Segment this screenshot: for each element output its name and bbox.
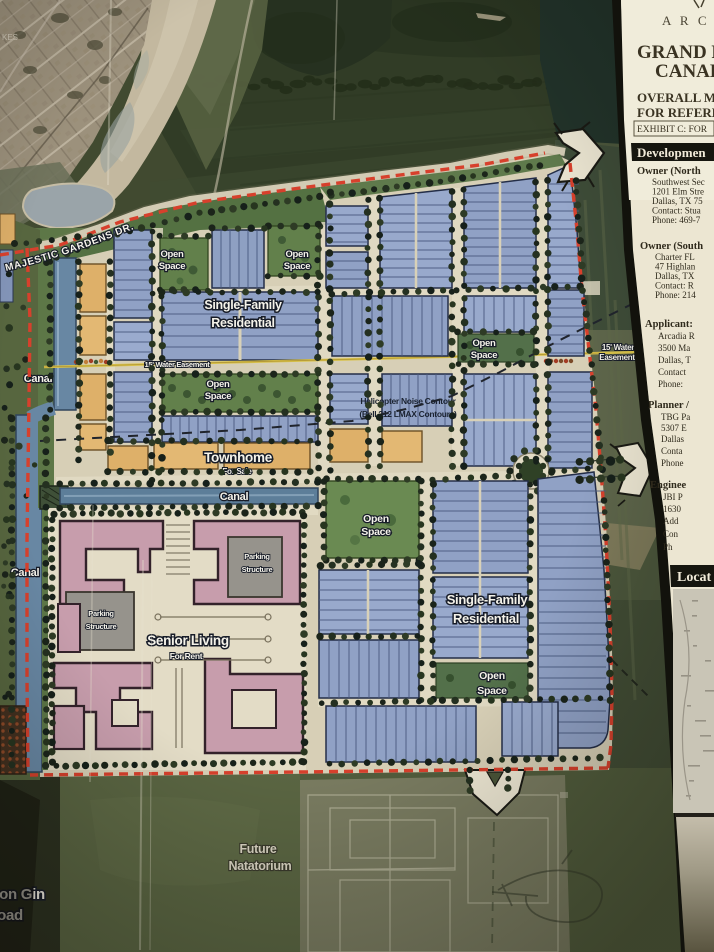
svg-text:3500 Ma: 3500 Ma: [658, 343, 690, 353]
svg-text:Enginee: Enginee: [650, 480, 687, 491]
svg-text:5307 E: 5307 E: [661, 423, 687, 433]
svg-text:1201 Elm Stre: 1201 Elm Stre: [652, 187, 704, 197]
svg-text:Ph: Ph: [663, 542, 673, 552]
svg-text:Dallas, TX: Dallas, TX: [655, 271, 695, 281]
svg-text:Owner (North: Owner (North: [637, 166, 701, 177]
svg-text:Contact: R: Contact: R: [655, 281, 694, 291]
svg-text:Applicant:: Applicant:: [645, 319, 693, 330]
svg-text:Planner /: Planner /: [648, 400, 690, 411]
svg-text:CANAL: CANAL: [655, 61, 714, 82]
svg-text:FOR REFERE: FOR REFERE: [637, 105, 714, 120]
svg-text:Add: Add: [663, 516, 679, 526]
svg-text:1630: 1630: [663, 504, 682, 514]
svg-text:Phone: 469-7: Phone: 469-7: [652, 215, 701, 225]
svg-text:Contact: Stua: Contact: Stua: [652, 206, 701, 216]
svg-text:Dallas, T: Dallas, T: [658, 355, 691, 365]
svg-text:47 Highlan: 47 Highlan: [655, 262, 696, 272]
svg-text:Phone:: Phone:: [658, 379, 683, 389]
svg-text:EXHIBIT C: FOR: EXHIBIT C: FOR: [637, 125, 708, 135]
svg-text:Arcadia R: Arcadia R: [658, 331, 695, 341]
svg-text:Phone: 214: Phone: 214: [655, 290, 696, 300]
svg-text:Charter FL: Charter FL: [655, 252, 695, 262]
svg-text:Locat: Locat: [677, 570, 712, 585]
svg-text:Con: Con: [663, 529, 679, 539]
svg-text:OVERALL M: OVERALL M: [637, 90, 714, 105]
svg-text:A R C: A R C: [662, 13, 710, 28]
svg-text:Dallas, TX 75: Dallas, TX 75: [652, 196, 703, 206]
svg-text:Dallas: Dallas: [661, 434, 684, 444]
svg-text:Southwest Sec: Southwest Sec: [652, 177, 705, 187]
svg-text:Owner (South: Owner (South: [640, 241, 703, 252]
svg-text:Contact: Contact: [658, 367, 686, 377]
svg-text:JBI P: JBI P: [663, 492, 683, 502]
svg-text:Developmen: Developmen: [637, 145, 706, 160]
svg-text:GRAND P: GRAND P: [637, 42, 714, 63]
svg-text:Phone: Phone: [661, 458, 684, 468]
svg-text:Conta: Conta: [661, 446, 683, 456]
svg-text:TBG Pa: TBG Pa: [661, 412, 690, 422]
